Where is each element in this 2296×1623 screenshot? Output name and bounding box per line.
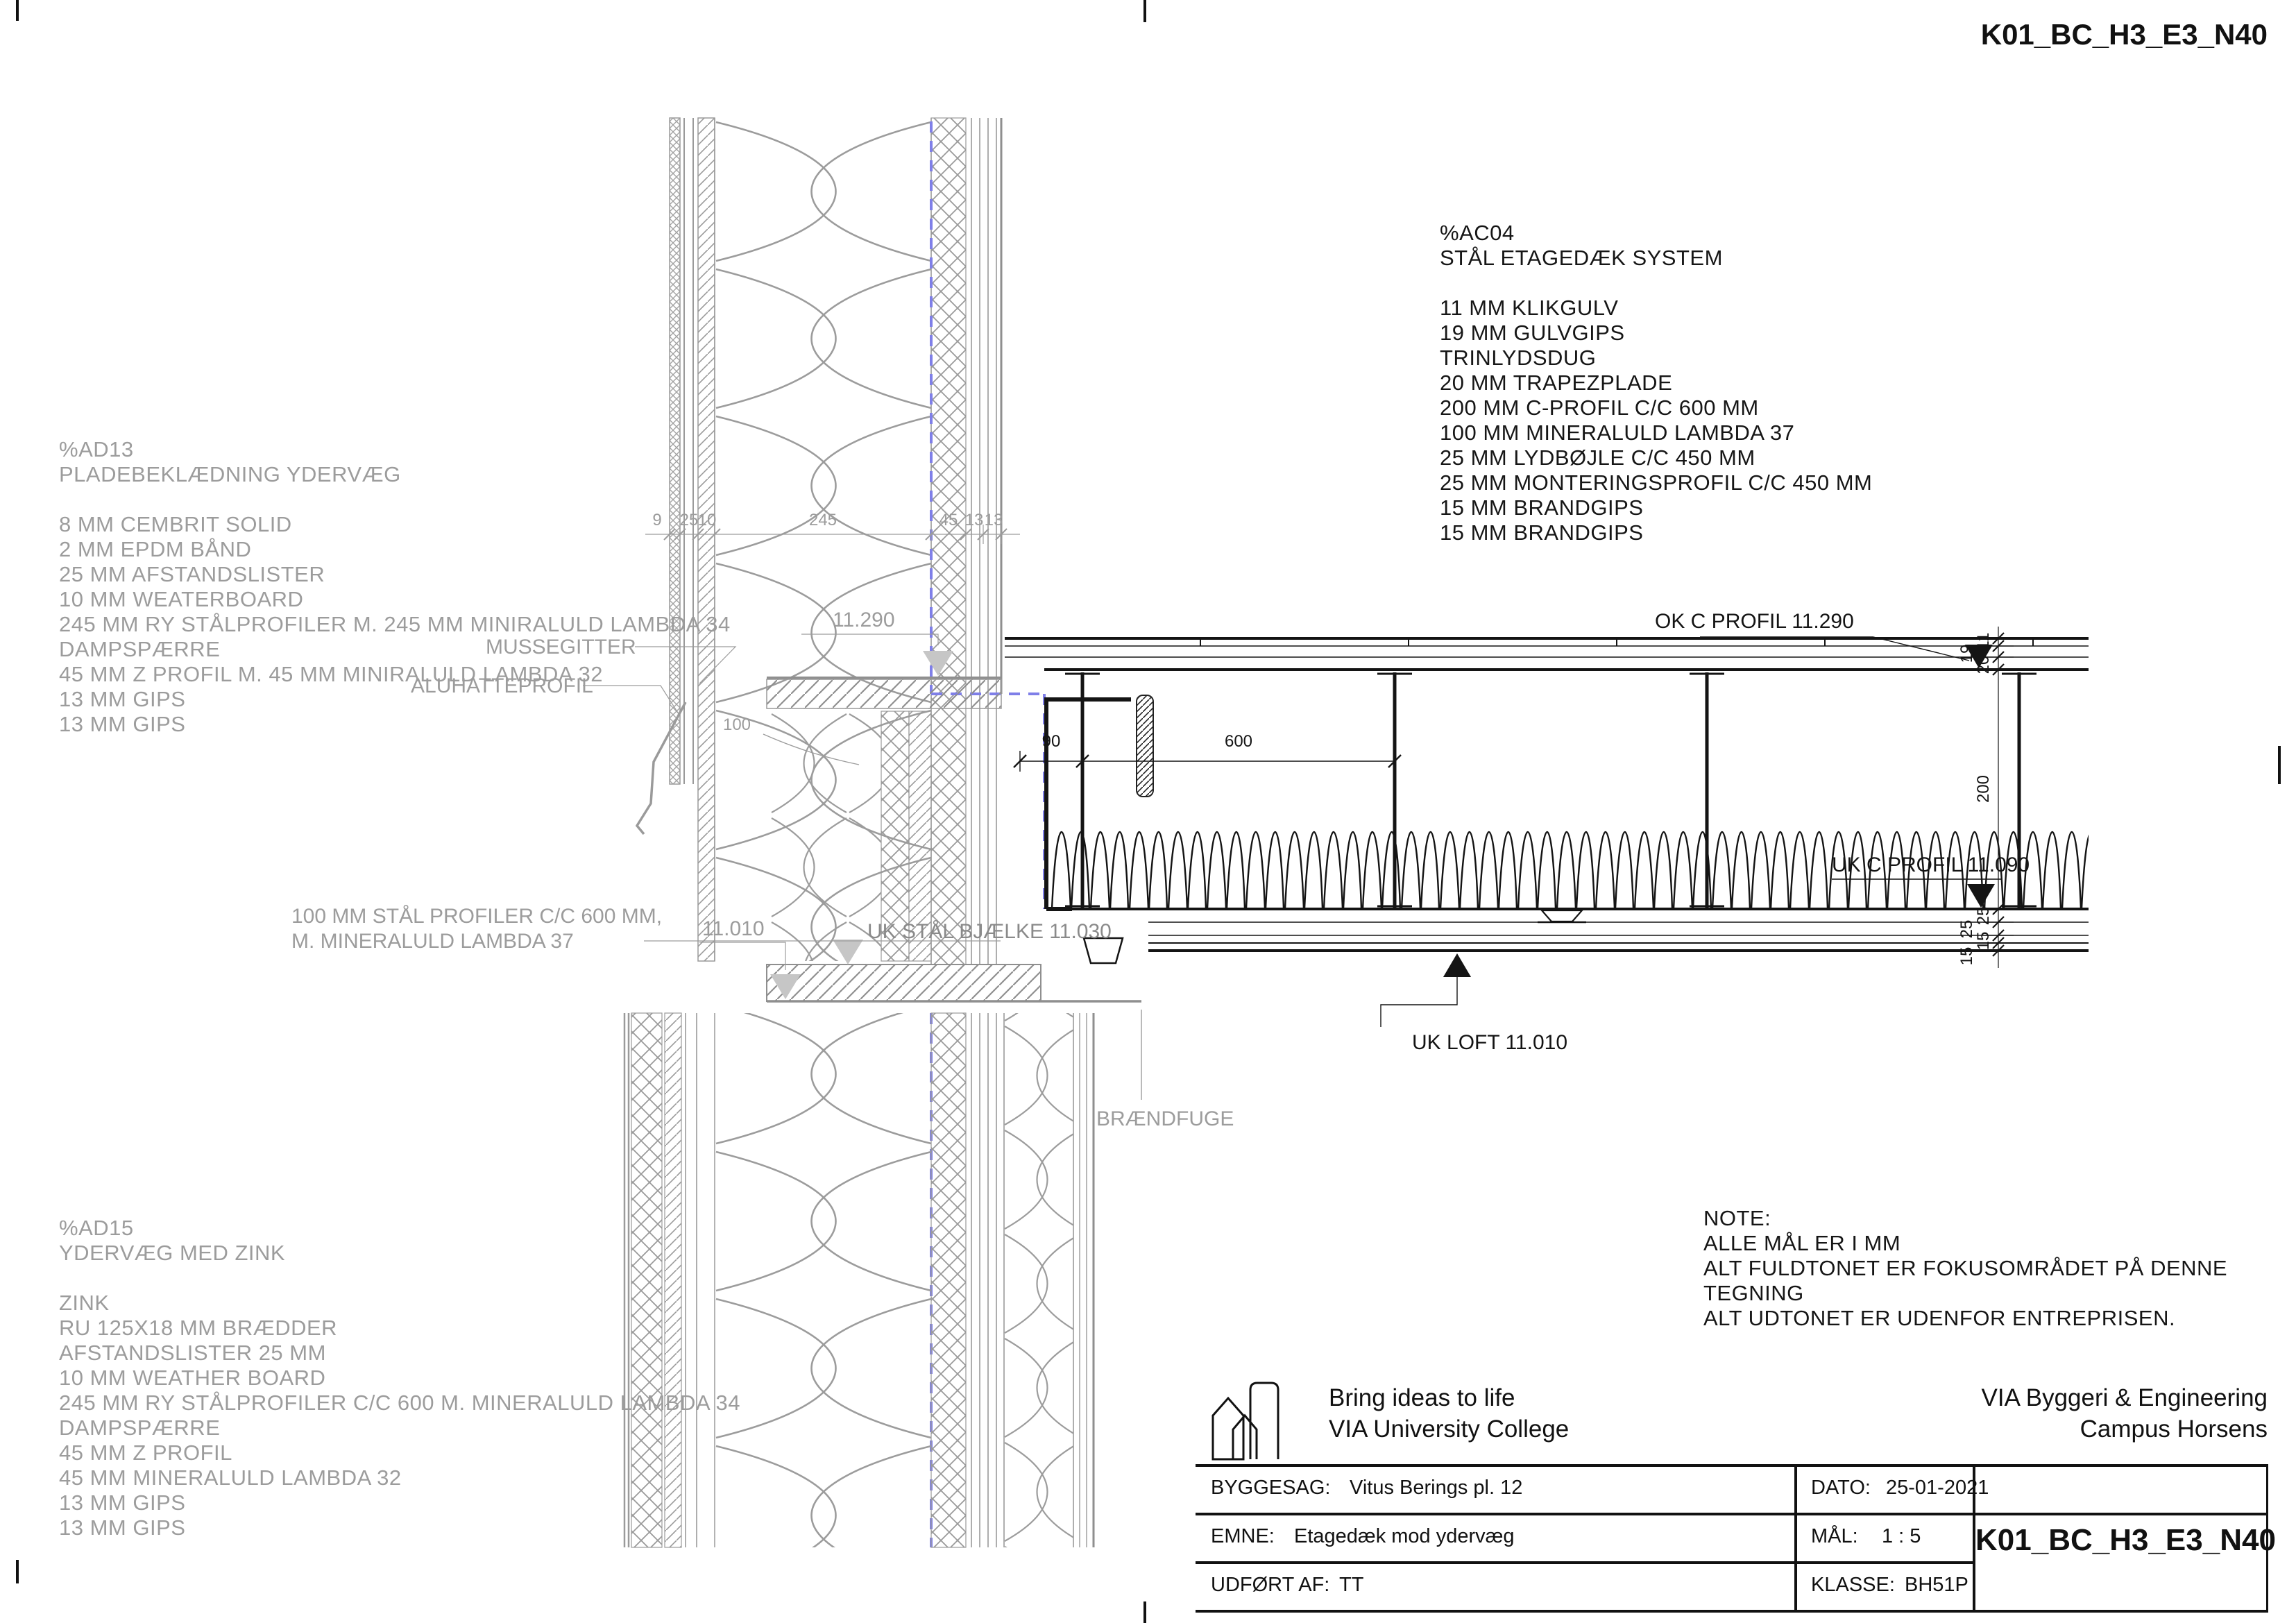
- dim-245: 245: [809, 511, 837, 529]
- dim-600: 600: [1225, 732, 1252, 751]
- svg-text:UK STÅL BJÆLKE 11.030: UK STÅL BJÆLKE 11.030: [867, 920, 1112, 943]
- svg-text:M. MINERALULD LAMBDA 37: M. MINERALULD LAMBDA 37: [291, 930, 574, 953]
- dim-25b: 25: [1957, 920, 1976, 939]
- material-block-ac04: %AC04 STÅL ETAGEDÆK SYSTEM 11 MM KLIKGUL…: [1440, 221, 1872, 545]
- byggesag-label: BYGGESAG:: [1211, 1477, 1330, 1499]
- drawing-code-cell: K01_BC_H3_E3_N40: [1975, 1523, 2266, 1558]
- note-block: NOTE: ALLE MÅL ER I MM ALT FULDTONET ER …: [1703, 1206, 2296, 1331]
- titleblock-divider: [1196, 1561, 1974, 1564]
- svg-text:UK C PROFIL 11.090: UK C PROFIL 11.090: [1832, 853, 2030, 876]
- dim-15a: 15: [1974, 932, 1993, 951]
- dim-13a: 13: [965, 511, 984, 529]
- emne-value: Etagedæk mod ydervæg: [1294, 1525, 1515, 1548]
- klasse-label: KLASSE:: [1811, 1574, 1895, 1597]
- dato-label: DATO:: [1811, 1477, 1871, 1499]
- dim-25a: 25: [1974, 907, 1993, 926]
- svg-text:UK LOFT 11.010: UK LOFT 11.010: [1412, 1031, 1567, 1054]
- byggesag-value: Vitus Berings pl. 12: [1350, 1477, 1522, 1499]
- dato-value: 25-01-2021: [1886, 1477, 1989, 1499]
- label-braendfuge: BRÆNDFUGE: [1096, 1107, 1234, 1130]
- drawing-code-top: K01_BC_H3_E3_N40: [1981, 18, 2268, 51]
- material-block-ad15: %AD15 YDERVÆG MED ZINK ZINK RU 125X18 MM…: [59, 1216, 740, 1540]
- dimension-90-600: [1014, 751, 1401, 772]
- maal-value: 1 : 5: [1882, 1525, 1921, 1548]
- titleblock-divider: [1196, 1513, 2268, 1515]
- dim-45: 45: [939, 511, 958, 529]
- svg-text:OK C PROFIL 11.290: OK C PROFIL 11.290: [1655, 610, 1854, 633]
- via-logo-icon: [1210, 1377, 1314, 1464]
- udfoert-value: TT: [1339, 1574, 1363, 1597]
- brand-line2: VIA University College: [1329, 1416, 1569, 1443]
- maal-label: MÅL:: [1811, 1525, 1858, 1548]
- titleblock-divider: [1196, 1610, 2268, 1613]
- dim-13b: 13: [985, 511, 1003, 529]
- titleblock-divider: [1196, 1464, 2268, 1467]
- dim-90: 90: [1042, 732, 1061, 751]
- udfoert-label: UDFØRT AF:: [1211, 1574, 1329, 1597]
- drawing-sheet: 9 25 10 245 45 13 13 90 600 100: [0, 0, 2296, 1623]
- svg-text:100 MM STÅL PROFILER C/C 600 M: 100 MM STÅL PROFILER C/C 600 MM,: [291, 905, 662, 928]
- svg-text:11.010: 11.010: [702, 917, 765, 940]
- svg-text:11.290: 11.290: [833, 609, 895, 631]
- interior-stud-wall: [1004, 1013, 1094, 1547]
- svg-text:BRÆNDFUGE: BRÆNDFUGE: [1096, 1107, 1234, 1130]
- emne-label: EMNE:: [1211, 1525, 1275, 1548]
- titleblock-divider: [1794, 1464, 1797, 1613]
- org-line1: VIA Byggeri & Engineering: [1901, 1384, 2268, 1412]
- dim-200: 200: [1974, 775, 1993, 803]
- org-line2: Campus Horsens: [1901, 1416, 2268, 1443]
- level-triangle-up-icon: [1443, 953, 1471, 977]
- dim-15b: 15: [1957, 947, 1976, 966]
- brand-line1: Bring ideas to life: [1329, 1384, 1515, 1412]
- lydboejle-clip: [1542, 910, 1582, 921]
- fire-stop-profile: [1137, 695, 1153, 797]
- material-block-ad13: %AD13 PLADEBEKLÆDNING YDERVÆG 8 MM CEMBR…: [59, 437, 731, 737]
- klasse-value: BH51P: [1905, 1574, 1968, 1597]
- level-uk-loft: UK LOFT 11.010: [1381, 953, 1567, 1054]
